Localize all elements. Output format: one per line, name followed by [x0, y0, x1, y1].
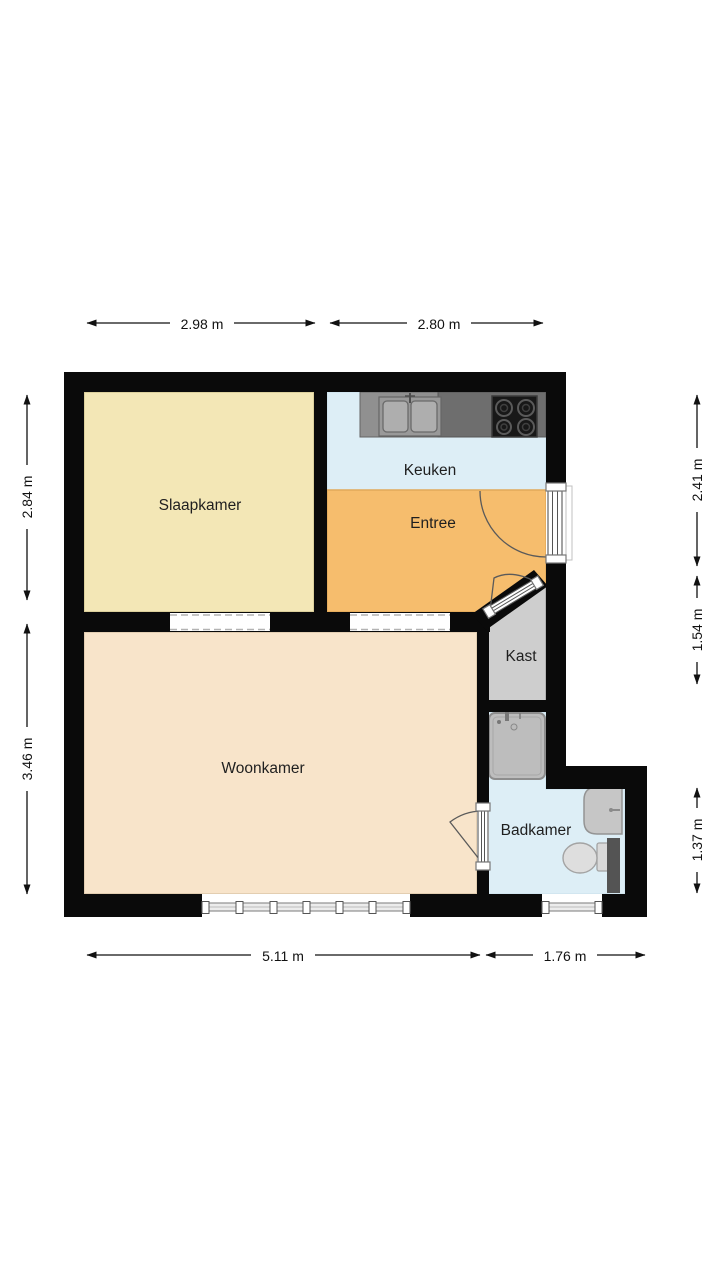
label-slaapkamer: Slaapkamer [159, 497, 242, 514]
window-woonkamer [202, 894, 410, 917]
toilet-icon [563, 843, 612, 873]
dim-top-right: 2.80 m [418, 316, 461, 332]
cooktop-icon [492, 396, 537, 437]
wall-left [64, 372, 84, 917]
room-fills [84, 392, 625, 894]
badkamer-door-leaf [478, 811, 488, 862]
sink-basin-right [411, 401, 437, 432]
dim-top-left: 2.98 m [181, 316, 224, 332]
window-badkamer [542, 894, 602, 917]
passage-slaapkamer-woonkamer [170, 613, 270, 631]
dim-bottom-left: 5.11 m [262, 948, 304, 964]
label-woonkamer: Woonkamer [221, 760, 304, 777]
passage-entree-woonkamer [350, 613, 450, 631]
dim-right-upper: 2.41 m [689, 459, 705, 502]
wall-kast-bottom [477, 700, 566, 712]
dim-left-upper: 2.84 m [19, 476, 35, 519]
label-entree: Entree [410, 515, 456, 532]
wall-slaapkamer-keuken [314, 372, 327, 632]
washbasin-icon [584, 787, 622, 834]
front-door-leaf [548, 491, 562, 555]
floor-plan-drawing: 2.98 m 2.80 m 5.11 m 1.76 m 2.84 m 3.46 … [0, 0, 720, 1280]
dim-left-lower: 3.46 m [19, 738, 35, 781]
front-door-threshold [566, 486, 572, 560]
label-badkamer: Badkamer [501, 822, 572, 839]
shower-icon [489, 712, 545, 779]
dim-bottom-right: 1.76 m [544, 948, 587, 964]
label-kast: Kast [505, 648, 537, 665]
wall-woonkamer-right-lower [477, 870, 489, 894]
dim-right-middle: 1.54 m [689, 609, 705, 652]
wall-right-mid [546, 562, 566, 766]
floor-plan-page: 2.98 m 2.80 m 5.11 m 1.76 m 2.84 m 3.46 … [0, 0, 720, 1280]
dim-right-lower: 1.37 m [689, 819, 705, 862]
wall-extension-right [625, 766, 647, 917]
radiator-icon [607, 838, 620, 893]
sink-basin-left [383, 401, 408, 432]
label-keuken: Keuken [404, 462, 457, 479]
wall-right-upper [546, 372, 566, 484]
kitchen-counter [360, 392, 546, 437]
